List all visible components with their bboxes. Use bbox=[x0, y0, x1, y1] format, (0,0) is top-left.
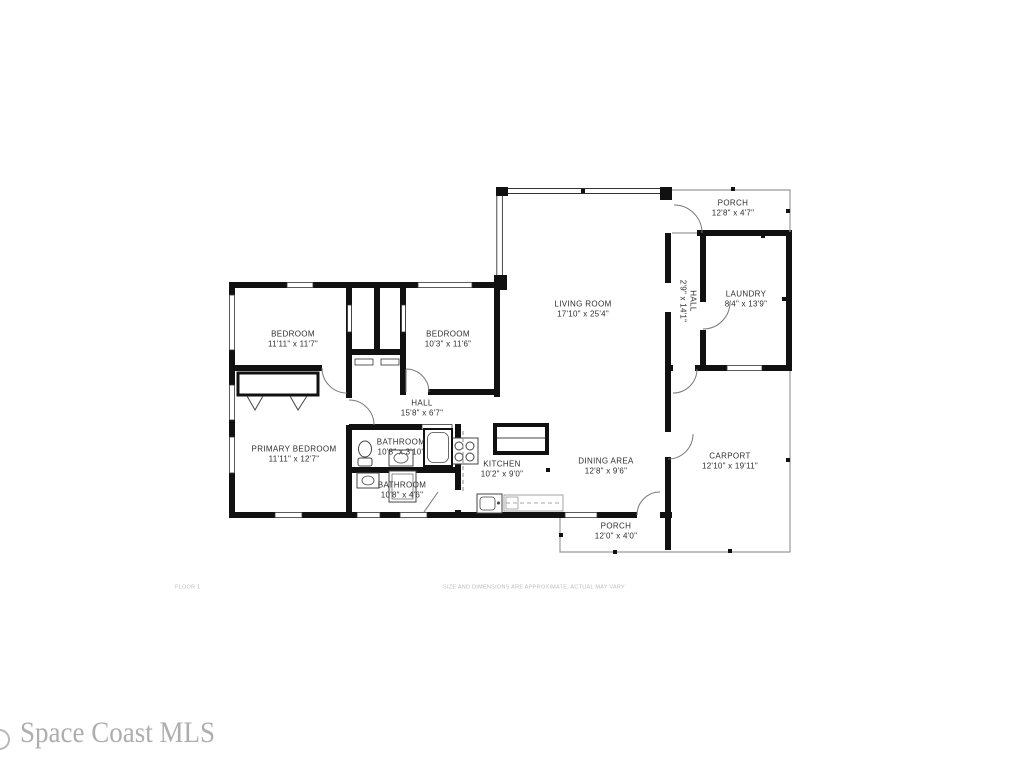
room-name: DINING AREA bbox=[578, 457, 633, 467]
primary-closet bbox=[238, 373, 318, 410]
room-label-bathroom-2: BATHROOM 10'8" x 4'6" bbox=[378, 481, 426, 502]
room-dims: 11'11" x 12'7" bbox=[252, 455, 337, 465]
room-name: PRIMARY BEDROOM bbox=[252, 445, 337, 455]
room-name: PORCH bbox=[595, 522, 637, 532]
room-dims: 2'9" x 14'1" bbox=[677, 280, 687, 322]
refrigerator-fixture bbox=[495, 425, 547, 453]
door-dining-to-carport bbox=[668, 434, 693, 459]
room-name: HALL bbox=[401, 399, 443, 409]
toilet-fixture bbox=[358, 441, 372, 466]
room-dims: 10'3" x 11'6" bbox=[425, 340, 472, 350]
closet-rod-mark bbox=[290, 396, 307, 410]
room-label-kitchen: KITCHEN 10'2" x 9'0" bbox=[481, 460, 523, 481]
floor-plan-drawing bbox=[0, 0, 1024, 768]
room-dims: 15'8" x 6'7" bbox=[401, 409, 443, 419]
floor-label: FLOOR 1 bbox=[175, 584, 200, 590]
room-dims: 10'8" x 4'6" bbox=[378, 491, 426, 501]
room-name: BEDROOM bbox=[268, 330, 318, 340]
door-hall-to-carport bbox=[673, 369, 697, 393]
room-dims: 12'8" x 4'7" bbox=[712, 209, 754, 219]
room-dims: 8'4" x 13'9" bbox=[725, 300, 767, 310]
room-dims: 10'8" x 3'10" bbox=[377, 448, 425, 458]
room-name: CARPORT bbox=[702, 452, 758, 462]
stove-fixture bbox=[452, 438, 478, 464]
room-label-bedroom-2: BEDROOM 10'3" x 11'6" bbox=[425, 330, 472, 351]
walls bbox=[229, 187, 792, 550]
room-dims: 12'10" x 19'11" bbox=[702, 462, 758, 472]
window-wall bbox=[497, 189, 660, 276]
room-name: BATHROOM bbox=[377, 438, 425, 448]
outdoor-outlines bbox=[560, 190, 790, 552]
kitchen-counter bbox=[504, 495, 563, 511]
room-label-carport: CARPORT 12'10" x 19'11" bbox=[702, 452, 758, 473]
room-dims: 12'0" x 4'0" bbox=[595, 532, 637, 542]
room-label-dining-area: DINING AREA 12'8" x 9'6" bbox=[578, 457, 633, 478]
room-name: PORCH bbox=[712, 199, 754, 209]
room-label-hall: HALL 15'8" x 6'7" bbox=[401, 399, 443, 420]
kitchen-sink-fixture bbox=[477, 494, 502, 513]
bathtub-fixture bbox=[424, 429, 452, 466]
room-name: BEDROOM bbox=[425, 330, 472, 340]
room-label-living-room: LIVING ROOM 17'10" x 25'4" bbox=[554, 300, 611, 321]
door-primary-bedroom bbox=[349, 400, 374, 425]
room-label-bedroom-1: BEDROOM 11'11" x 11'7" bbox=[268, 330, 318, 351]
watermark-text: Space Coast MLS bbox=[20, 716, 215, 750]
room-label-laundry: LAUNDRY 8'4" x 13'9" bbox=[725, 290, 767, 311]
room-label-bathroom-1: BATHROOM 10'8" x 3'10" bbox=[377, 438, 425, 459]
room-label-primary-bedroom: PRIMARY BEDROOM 11'11" x 12'7" bbox=[252, 445, 337, 466]
door-dining-to-porch-lower bbox=[637, 492, 660, 515]
sink-fixture bbox=[357, 473, 379, 488]
room-dims: 11'11" x 11'7" bbox=[268, 340, 318, 350]
room-dims: 12'8" x 9'6" bbox=[578, 467, 633, 477]
room-name: KITCHEN bbox=[481, 460, 523, 470]
door-bedroom-2 bbox=[406, 369, 429, 392]
door-bedroom-1 bbox=[322, 368, 347, 393]
closet-rod-mark bbox=[247, 396, 263, 410]
room-name: HALL bbox=[687, 280, 697, 322]
room-label-hall-upper: HALL 2'9" x 14'1" bbox=[677, 280, 698, 322]
room-name: LIVING ROOM bbox=[554, 300, 611, 310]
room-label-porch-lower: PORCH 12'0" x 4'0" bbox=[595, 522, 637, 543]
room-name: LAUNDRY bbox=[725, 290, 767, 300]
disclaimer-text: SIZE AND DIMENSIONS ARE APPROXIMATE, ACT… bbox=[443, 584, 625, 590]
room-dims: 10'2" x 9'0" bbox=[481, 470, 523, 480]
room-name: BATHROOM bbox=[378, 481, 426, 491]
room-dims: 17'10" x 25'4" bbox=[554, 310, 611, 320]
room-label-porch-upper: PORCH 12'8" x 4'7" bbox=[712, 199, 754, 220]
door-living-to-porch bbox=[674, 205, 702, 233]
